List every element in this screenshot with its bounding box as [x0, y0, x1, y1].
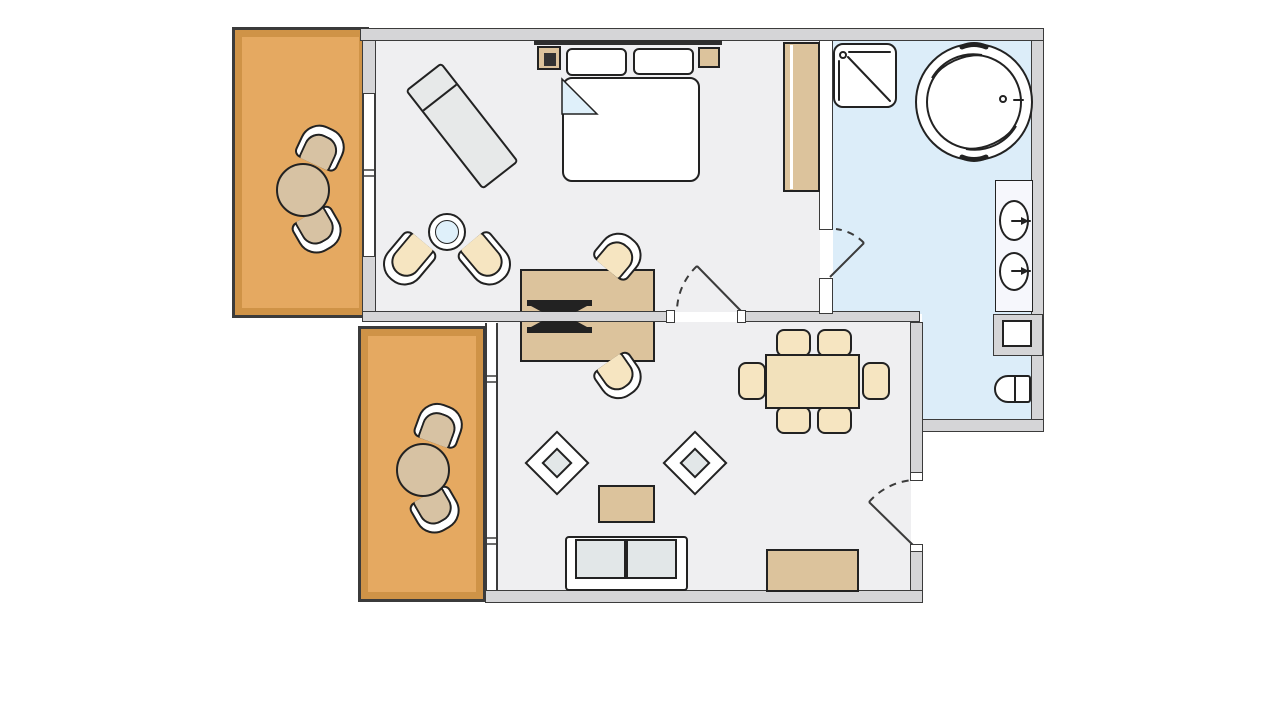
floor-plan	[0, 0, 1280, 720]
wall-bathroom-partition-upper	[819, 40, 833, 230]
door-jamb	[737, 310, 746, 323]
glass-table-top	[435, 220, 459, 244]
dining-chair	[862, 362, 890, 400]
dining-chair	[738, 362, 766, 400]
sideboard	[766, 549, 859, 592]
dining-chair	[776, 406, 811, 434]
phone-nightstand	[537, 46, 561, 70]
bidet	[1002, 320, 1032, 347]
sofa-cushion	[626, 539, 677, 579]
wall-bathroom-partition-lower	[819, 278, 833, 314]
bed-headboard	[534, 40, 722, 45]
nightstand	[698, 47, 720, 68]
double-bed	[562, 77, 700, 182]
dining-table	[765, 354, 860, 409]
glass-side-table	[428, 213, 466, 251]
wall-bedroom-left-upper	[362, 40, 376, 94]
wall-living-right-upper	[910, 322, 923, 480]
wall-bathroom-bottom	[910, 419, 1044, 432]
wardrobe	[783, 42, 820, 192]
phone-icon	[544, 53, 556, 66]
door-jamb	[910, 544, 923, 552]
dining-chair	[817, 406, 852, 434]
pillow	[566, 48, 627, 76]
wall-divider-left	[362, 311, 674, 322]
door-jamb	[910, 472, 923, 481]
toilet	[994, 375, 1031, 403]
wall-bedroom-left-lower	[362, 256, 376, 312]
dining-chair	[817, 329, 852, 357]
dining-chair	[776, 329, 811, 357]
shower	[833, 43, 897, 108]
balcony-round-table	[276, 163, 330, 217]
door-jamb	[666, 310, 675, 323]
sink	[999, 252, 1029, 291]
sink	[999, 200, 1029, 241]
window-bedroom-balcony	[362, 94, 376, 256]
wardrobe-door-line	[790, 45, 793, 189]
coffee-table	[598, 485, 655, 523]
pillow	[633, 48, 694, 75]
sofa	[565, 536, 688, 591]
tub-inner-rim	[926, 54, 1022, 150]
balcony-round-table	[396, 443, 450, 497]
sofa-cushion	[575, 539, 626, 579]
toilet-seam	[1014, 377, 1016, 401]
window-living-balcony	[485, 323, 498, 590]
chaise-headrest-line	[423, 84, 457, 111]
